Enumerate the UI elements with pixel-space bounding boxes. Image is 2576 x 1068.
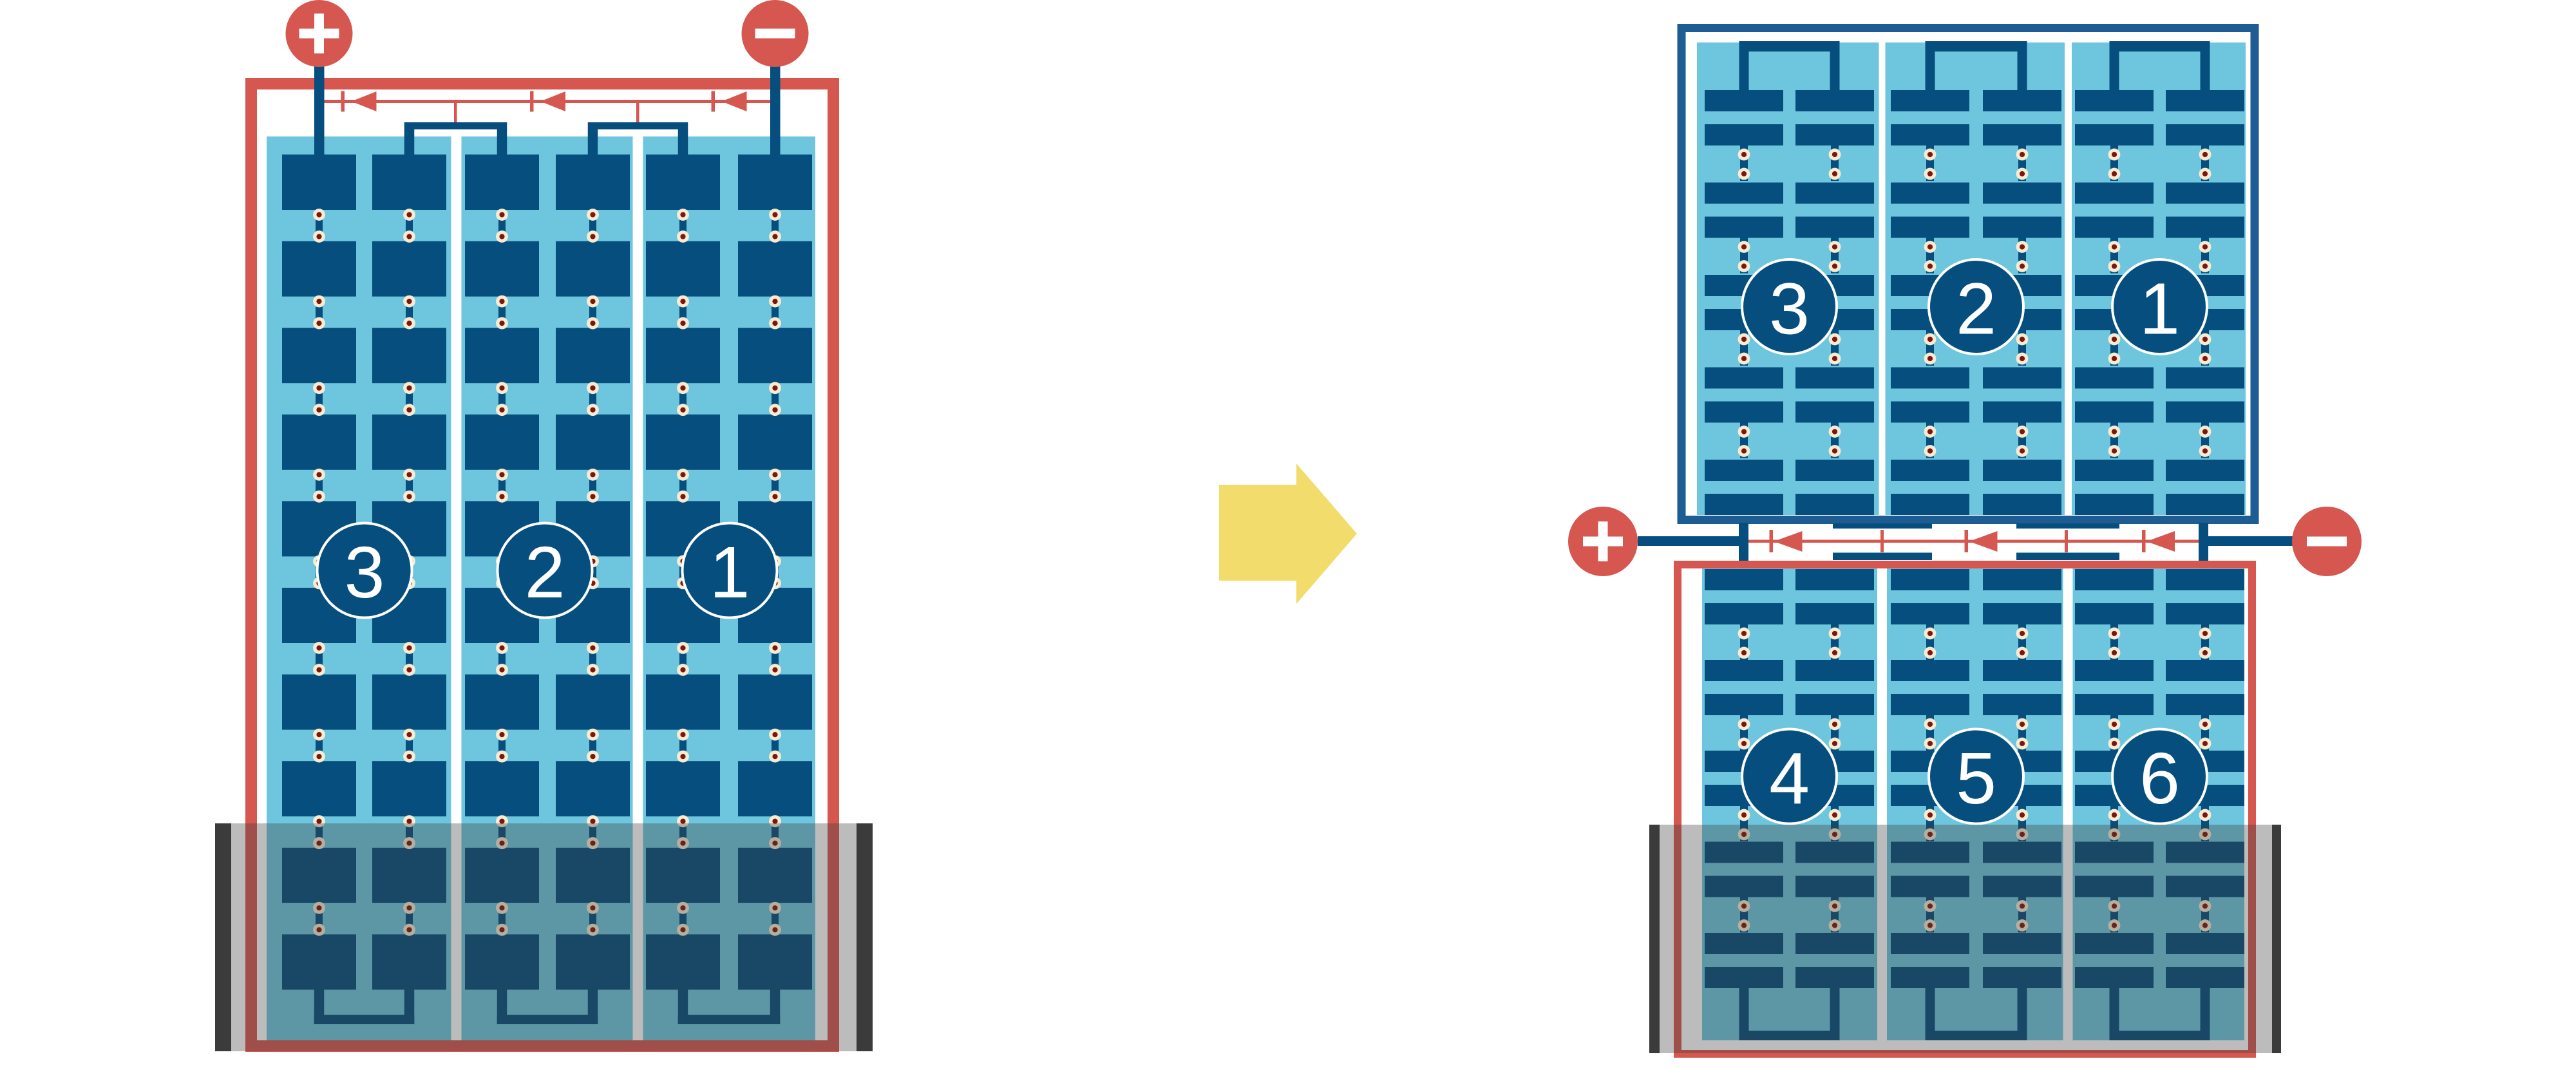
svg-text:2: 2 [1956,268,1996,350]
svg-text:2: 2 [525,532,565,613]
svg-text:1: 1 [710,532,750,613]
svg-text:3: 3 [1769,268,1810,350]
svg-text:4: 4 [1769,738,1810,819]
svg-text:6: 6 [2139,738,2180,819]
svg-text:3: 3 [345,532,385,613]
svg-text:1: 1 [2139,268,2180,350]
svg-text:5: 5 [1956,738,1996,819]
